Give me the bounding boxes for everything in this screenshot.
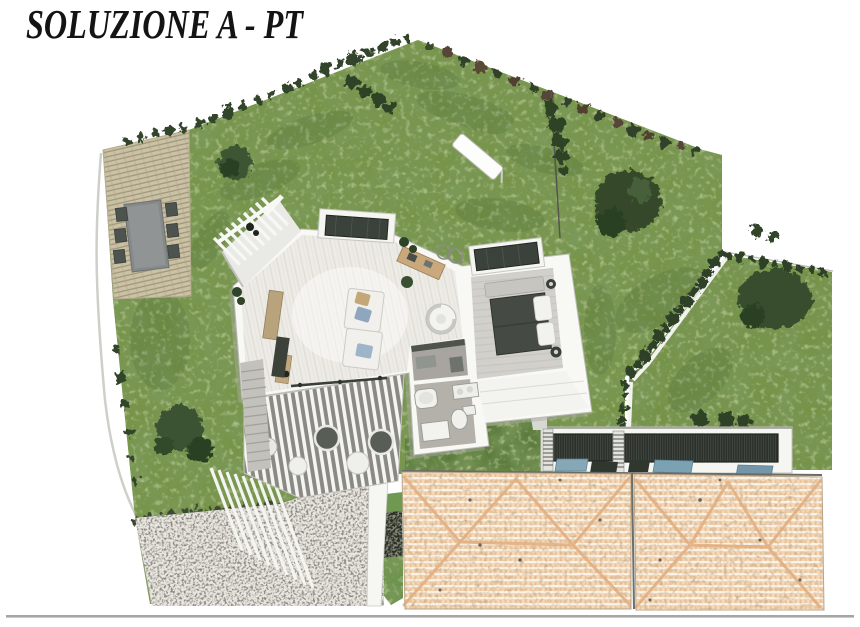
svg-text:SOLUZIONE A - PT: SOLUZIONE A - PT <box>26 1 305 47</box>
